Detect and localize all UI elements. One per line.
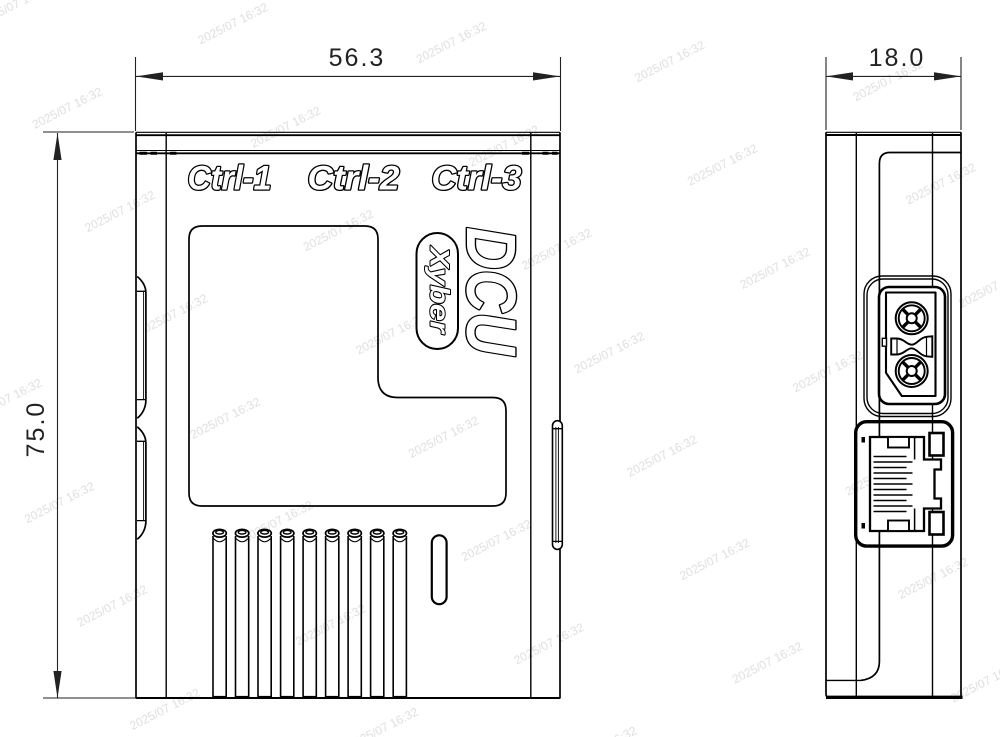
svg-text:Ctrl-3: Ctrl-3 (432, 160, 522, 198)
svg-text:DCU: DCU (452, 227, 530, 356)
svg-text:75.0: 75.0 (22, 401, 50, 458)
svg-text:56.3: 56.3 (329, 44, 386, 72)
svg-text:Ctrl-1: Ctrl-1 (188, 160, 272, 198)
svg-text:Xyber: Xyber (425, 245, 455, 335)
svg-text:18.0: 18.0 (869, 44, 926, 72)
svg-text:Ctrl-2: Ctrl-2 (308, 160, 400, 198)
